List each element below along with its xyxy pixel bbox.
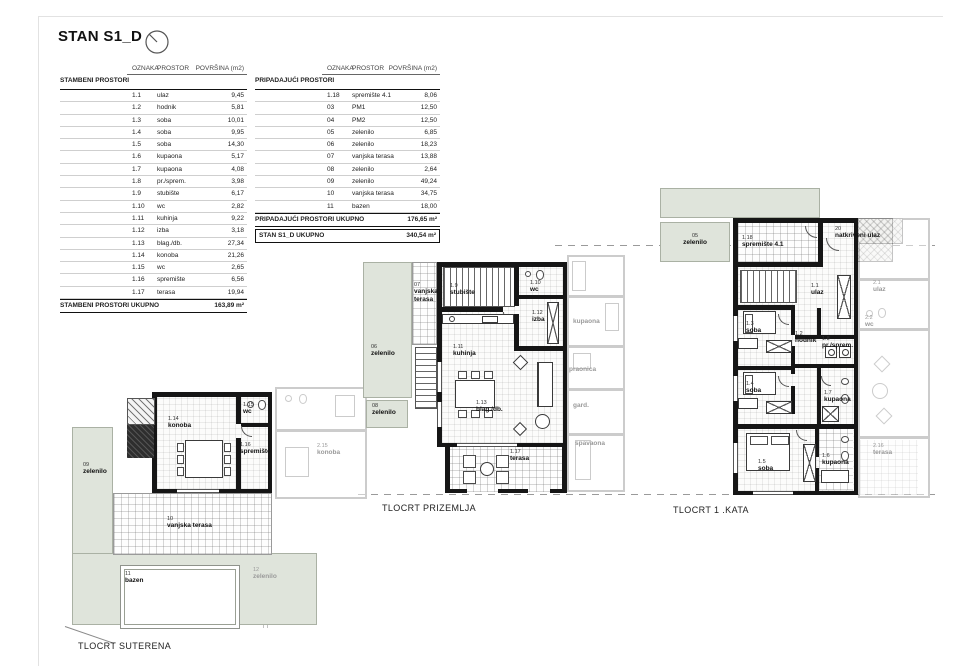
table-row: 1.18spremište 4.18,06 [255, 90, 440, 102]
toilet [258, 400, 266, 410]
table-row: 1.5soba14,30 [60, 139, 247, 151]
neighbor-unit [858, 218, 933, 498]
room-label-konoba: 1.14konoba [168, 416, 191, 430]
window [733, 316, 738, 341]
room-label-kupaona-16: 1.6kupaona [822, 453, 849, 467]
terrace-07-floor [412, 262, 437, 345]
table-pripadajuci-prostori: OZNAKA PROSTOR POVRŠINA (m2) PRIPADAJUĆI… [255, 63, 440, 243]
table-row: 1.13blag./db.27,34 [60, 238, 247, 250]
table-row: 1.16spremište6,56 [60, 274, 247, 286]
room-label-stubiste: 1.9stubište [450, 283, 475, 297]
neighbor-label-wc: 2.2wc [865, 315, 874, 329]
table-row: 1.17terasa19,94 [60, 287, 247, 299]
table-total-row: PRIPADAJUĆI PROSTORI UKUPNO 176,65 m² [255, 213, 440, 227]
wardrobe [547, 302, 559, 344]
window [437, 402, 442, 427]
room-label-pr-sprem: 1.8pr./sprem. [822, 336, 853, 350]
desk [738, 338, 758, 349]
table-row: 09zelenilo49,24 [255, 176, 440, 188]
table-row: 07vanjska terasa13,88 [255, 151, 440, 163]
room-label-hodnik: 1.2hodnik [795, 331, 816, 345]
exterior-stairs [127, 398, 155, 425]
table-row: 1.11kuhinja9,22 [60, 213, 247, 225]
table-row: 08zelenilo2,64 [255, 164, 440, 176]
room-label-zelenilo-12: 12zelenilo [253, 567, 277, 581]
table-row: 04PM212,50 [255, 115, 440, 127]
room-label-soba-13: 1.3soba [746, 321, 761, 335]
table-row: 1.6kupaona5,17 [60, 151, 247, 163]
sink [525, 271, 531, 277]
room-label-zelenilo-05: 05zelenilo [680, 233, 710, 247]
table-row: 1.8pr./sprem.3,98 [60, 176, 247, 188]
window [437, 362, 442, 392]
window [753, 491, 793, 496]
room-label-izba: 1.12izba [532, 310, 545, 324]
wardrobe [766, 340, 792, 353]
neighbor-label-ulaz: 2.1ulaz [873, 280, 886, 294]
retaining-wall-block [127, 425, 154, 458]
plan-caption-suterena: TLOCRT SUTERENA [78, 641, 171, 651]
room-label-neighbor-konoba: 2.15konoba [317, 443, 340, 457]
plan-caption-1-kat: TLOCRT 1 .KATA [673, 505, 749, 515]
green-area-06 [363, 262, 412, 398]
stairs [740, 270, 797, 303]
table-row: 1.1ulaz9,45 [60, 90, 247, 102]
table-row: 03PM112,50 [255, 102, 440, 114]
sink [841, 436, 849, 443]
round-table [535, 414, 550, 429]
shower [822, 406, 839, 422]
toilet [536, 270, 544, 280]
table-stambeni-prostori: OZNAKA PROSTOR POVRŠINA (m2) STAMBENI PR… [60, 63, 247, 313]
room-label-spremiste: 1.16spremište [240, 442, 271, 456]
window [733, 443, 738, 473]
table-row: 1.4soba9,95 [60, 127, 247, 139]
wardrobe [766, 401, 792, 414]
page-edge-top [38, 16, 943, 17]
room-label-ulaz: 1.1ulaz [811, 283, 824, 297]
table-row: 1.3soba10,01 [60, 115, 247, 127]
table-row: 05zelenilo6,85 [255, 127, 440, 139]
section-title: STAMBENI PROSTORI [60, 76, 247, 90]
room-label-bazen: 11bazen [125, 571, 143, 585]
desk [738, 398, 758, 409]
neighbor-label-spavaona: spavaona [575, 440, 605, 447]
room-label-wc: 1.10wc [530, 280, 541, 294]
page-title: STAN S1_D [58, 28, 142, 45]
neighbor-label-praonica: praonica [569, 366, 596, 373]
room-label-natkriveni-ulaz: 20natkriveni ulaz [835, 226, 880, 240]
table-grand-total-row: STAN S1_D UKUPNO 340,54 m² [255, 229, 440, 243]
table-row: 1.7kupaona4,08 [60, 164, 247, 176]
page-edge-left [38, 16, 39, 666]
bathtub [821, 470, 849, 483]
room-label-wc: 1.15wc [243, 402, 254, 416]
stove [482, 316, 498, 323]
table-rows: 1.1ulaz9,451.2hodnik5,811.3soba10,011.4s… [60, 90, 247, 299]
exterior-stairs [415, 347, 437, 409]
green-band [660, 188, 820, 218]
neighbor-label-terasa: 2.16terasa [873, 443, 892, 457]
terrace-17-floor [445, 447, 567, 492]
room-label-kupaona-17: 1.7kupaona [824, 390, 851, 404]
table-header: OZNAKA PROSTOR POVRŠINA (m2) [255, 63, 440, 76]
north-indicator-icon [142, 26, 172, 61]
room-label-zelenilo-08: 08zelenilo [372, 403, 396, 417]
green-area-09 [72, 427, 113, 555]
table-row: 1.15wc2,65 [60, 262, 247, 274]
plan-caption-prizemlje: TLOCRT PRIZEMLJA [382, 503, 476, 513]
room-label-terasa: 1.17terasa [510, 449, 529, 463]
table-total-row: STAMBENI PROSTORI UKUPNO 163,89 m² [60, 299, 247, 313]
neighbor-unit [567, 255, 625, 492]
room-label-spremiste-41: 1.18spremište 4.1 [742, 235, 784, 249]
table-rows: 1.18spremište 4.18,0603PM112,5004PM212,5… [255, 90, 440, 213]
section-title: PRIPADAJUĆI PROSTORI [255, 76, 440, 90]
kitchen-sink [449, 316, 455, 322]
window [177, 489, 219, 494]
floor-plan-suterena: 1.14konoba 1.15wc 1.16spremište 09zeleni… [55, 385, 377, 670]
room-label-blag-db: 1.13blag./db. [476, 400, 503, 414]
room-label-soba-14: 1.4soba [746, 381, 761, 395]
window [733, 376, 738, 401]
floor-plan-prizemlje: 1.9stubište 1.10wc 1.12izba 1.11kuhinja … [358, 250, 643, 522]
sink [841, 378, 849, 385]
room-label-zelenilo-09: 09zelenilo [83, 462, 107, 476]
room-label-zelenilo-06: 06zelenilo [371, 344, 395, 358]
floor-plan-1-kat: 05zelenilo 1.18spremište 4.1 20natkriven… [645, 185, 945, 525]
table-row: 1.14konoba21,26 [60, 250, 247, 262]
table-row: 1.12izba3,18 [60, 225, 247, 237]
sofa [537, 362, 553, 407]
table-row: 1.9stubište6,17 [60, 188, 247, 200]
table-row: 11bazen18,00 [255, 201, 440, 213]
dining-table [185, 440, 223, 478]
table-row: 10vanjska terasa34,75 [255, 188, 440, 200]
table-row: 1.10wc2,82 [60, 201, 247, 213]
neighbor-label-kupaona: kupaona [573, 318, 600, 325]
wardrobe [803, 444, 816, 482]
room-label-vanjska-terasa-10: 10vanjska terasa [167, 516, 212, 530]
room-label-kuhinja: 1.11kuhinja [453, 344, 476, 358]
shaft [837, 275, 851, 319]
terrace-opening [457, 443, 517, 448]
table-row: 1.2hodnik5,81 [60, 102, 247, 114]
table-row: 06zelenilo18,23 [255, 139, 440, 151]
room-label-soba-15: 1.5soba [758, 459, 773, 473]
neighbor-label-gard: gard. [573, 402, 589, 409]
round-table [480, 462, 494, 476]
room-label-vanjska-terasa-07: 07vanjska terasa [414, 282, 440, 303]
table-header: OZNAKA PROSTOR POVRŠINA (m2) [60, 63, 247, 76]
